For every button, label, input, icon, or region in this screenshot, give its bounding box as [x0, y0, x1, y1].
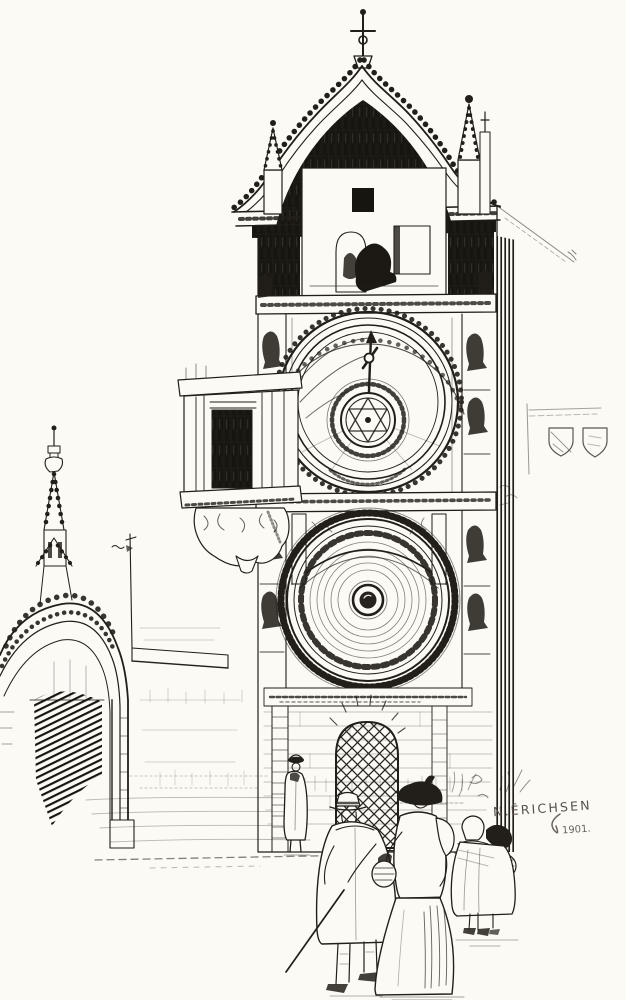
pole [130, 534, 132, 648]
signature-flourish [552, 814, 560, 833]
gable-pinnacle-right [458, 95, 490, 214]
gable-pinnacle-left [264, 120, 282, 214]
courtyard-wall [132, 628, 242, 762]
background-right-sketch [500, 208, 607, 505]
shoe [477, 928, 490, 936]
shoe [463, 928, 476, 935]
inscription-band [264, 688, 472, 706]
bell-opening [352, 188, 374, 212]
woman-with-bundle [451, 816, 518, 946]
dial-center-star [341, 393, 395, 447]
shoe [326, 984, 348, 993]
tower-side-shadow [497, 236, 516, 852]
chapel-pinnacle [36, 426, 72, 605]
portal-arch [0, 595, 134, 848]
figures [284, 755, 518, 1000]
heraldic-shields [549, 428, 607, 457]
oriel-corbel [194, 508, 289, 573]
hooded-head [462, 816, 484, 840]
bird-mark [112, 546, 124, 549]
oriel-opening [212, 410, 252, 488]
oriel-window [178, 364, 302, 573]
date-inscription: 1901. [562, 824, 591, 837]
astronomical-dial [272, 309, 464, 496]
etching-page: N.ĒRICHSEN 1901. [0, 0, 626, 1000]
apostle-house [302, 168, 446, 296]
portal-shadow [34, 691, 102, 826]
ecliptic-arc [294, 338, 370, 386]
etching-illustration: N.ĒRICHSEN 1901. [0, 0, 626, 1000]
